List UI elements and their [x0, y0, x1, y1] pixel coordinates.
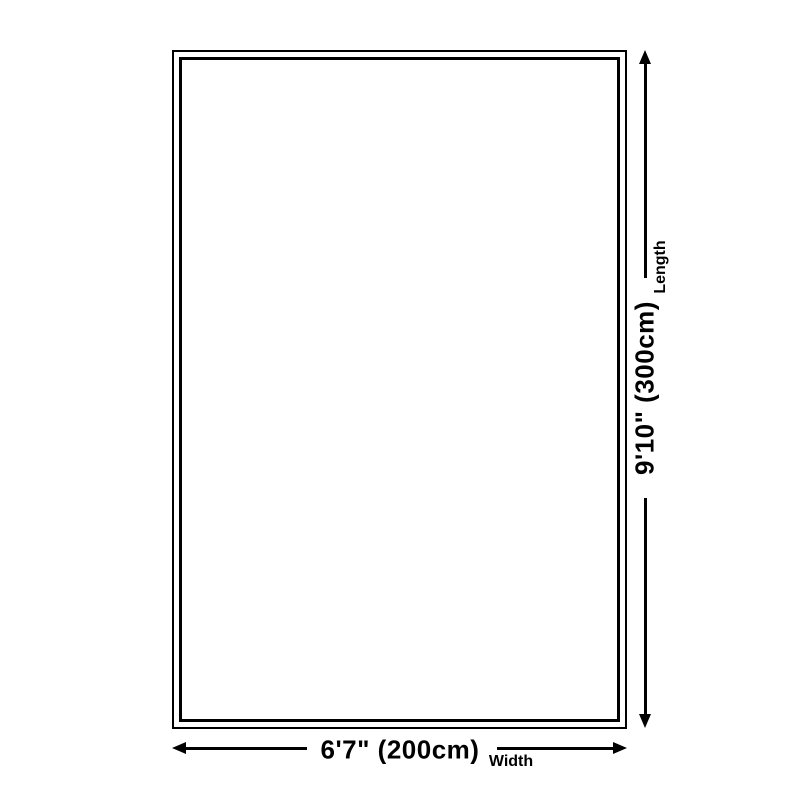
arrow-right-icon: [613, 742, 627, 754]
length-axis-label: Length: [652, 240, 670, 293]
length-dimension-line-bottom: [644, 498, 647, 714]
rug-outline-inner: [179, 57, 620, 722]
arrow-down-icon: [639, 714, 651, 728]
width-dimension-line-right: [497, 747, 613, 750]
width-value: 6'7" (200cm): [321, 735, 480, 766]
dimension-diagram: 6'7" (200cm) Width 9'10" (300cm) Length: [0, 0, 800, 800]
arrow-left-icon: [172, 742, 186, 754]
rug-outline-outer: [172, 50, 627, 729]
length-dimension-line-top: [644, 63, 647, 278]
length-value: 9'10" (300cm): [630, 301, 661, 475]
width-axis-label: Width: [489, 753, 533, 771]
width-dimension-line-left: [185, 747, 307, 750]
arrow-up-icon: [639, 50, 651, 64]
